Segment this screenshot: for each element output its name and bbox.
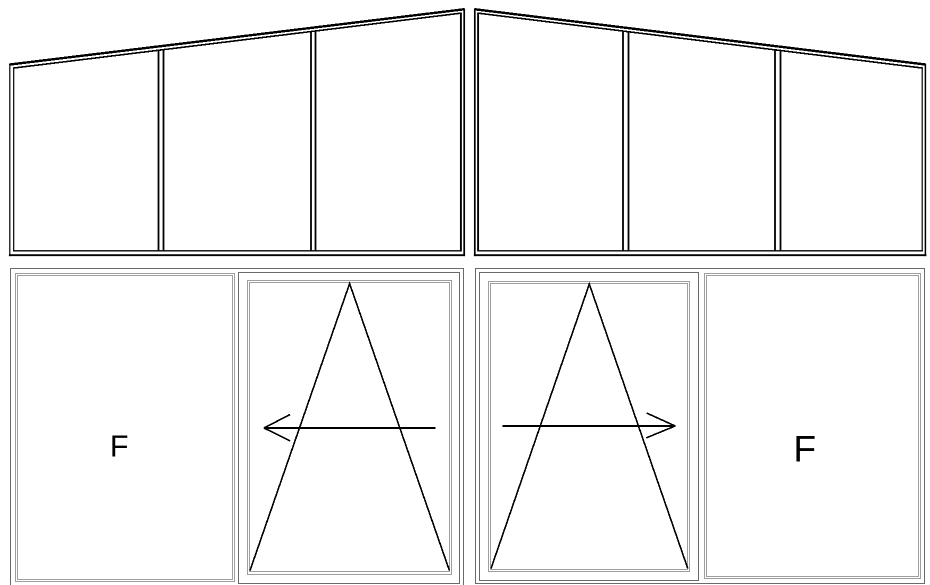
svg-text:F: F <box>793 428 816 470</box>
svg-text:F: F <box>110 430 129 464</box>
